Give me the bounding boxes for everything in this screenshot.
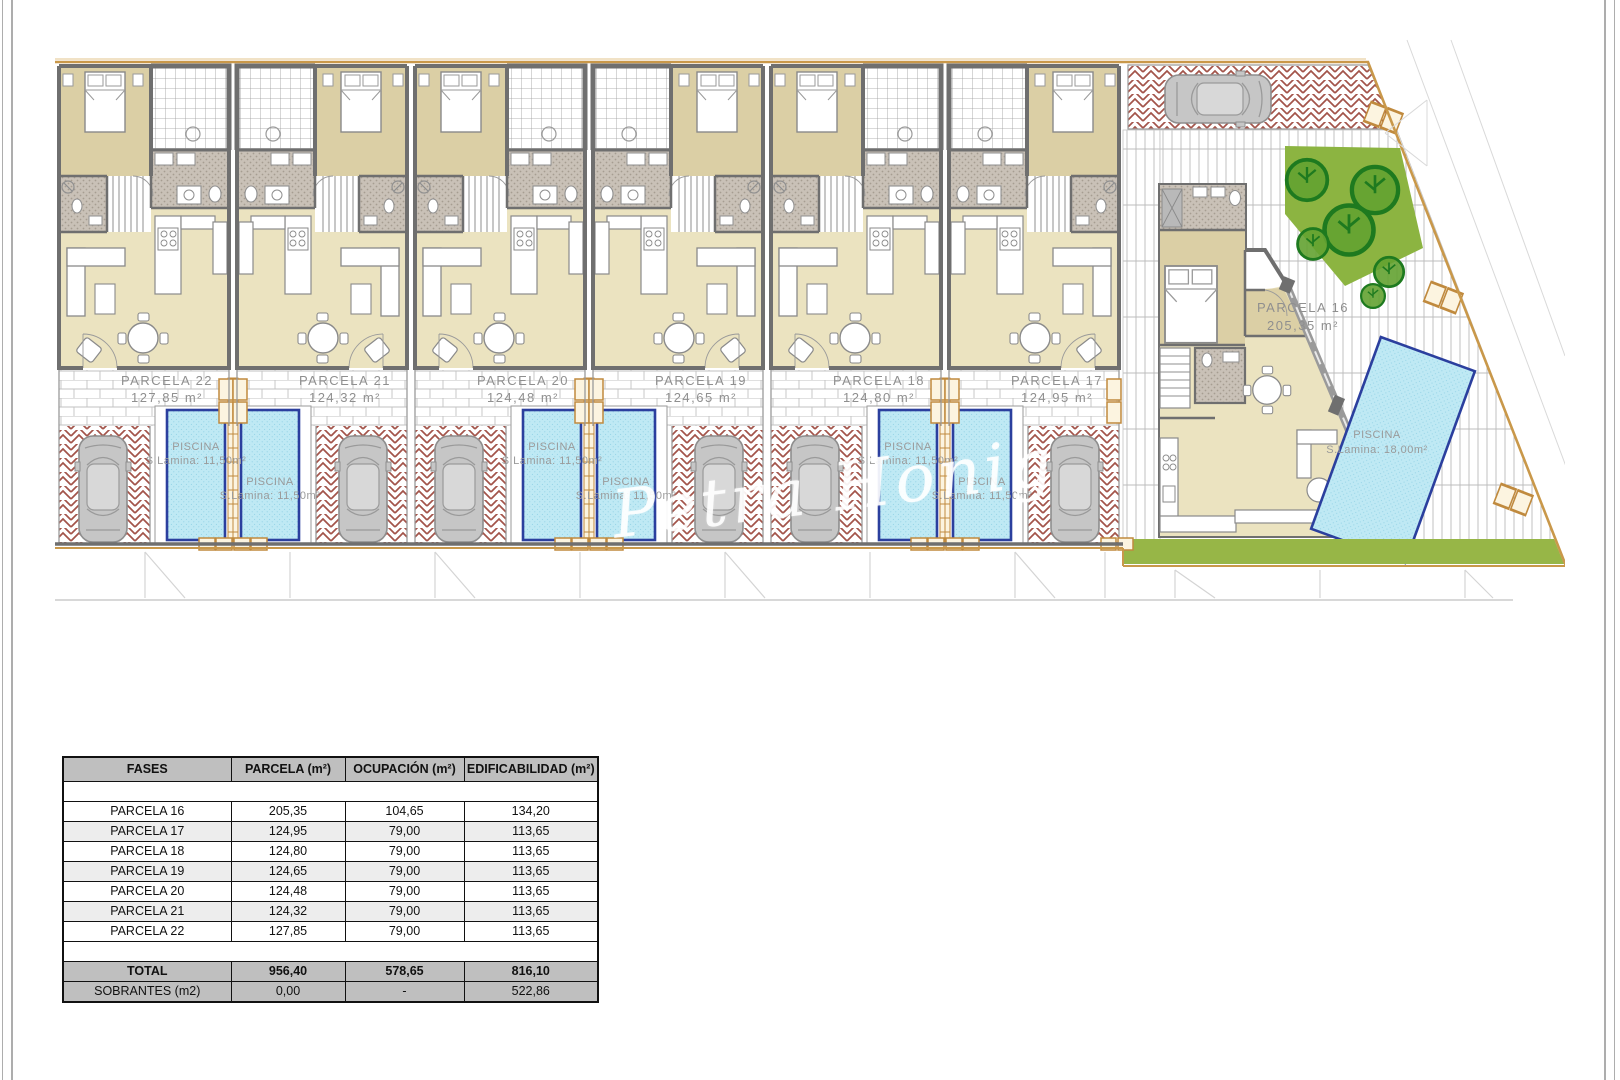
parcel-21-area: 124,32 m² xyxy=(309,390,381,405)
col-header-edificabilidad: EDIFICABILIDAD (m²) xyxy=(464,757,598,782)
pool-18-area: S.Lamina: 11,50m² xyxy=(858,455,959,467)
cell-sobrantes-ocupacion: - xyxy=(345,982,464,1003)
cell-fase: PARCELA 17 xyxy=(63,822,231,842)
cell-total-edificabilidad: 816,10 xyxy=(464,962,598,982)
table-row-parcela-19: PARCELA 19 124,65 79,00 113,65 xyxy=(63,862,598,882)
spacer-row xyxy=(63,942,598,962)
table-row-parcela-20: PARCELA 20 124,48 79,00 113,65 xyxy=(63,882,598,902)
table-header-row: FASES PARCELA (m²) OCUPACIÓN (m²) EDIFIC… xyxy=(63,757,598,782)
parcel-19-area: 124,65 m² xyxy=(665,390,737,405)
cell-fase: PARCELA 19 xyxy=(63,862,231,882)
areas-table: FASES PARCELA (m²) OCUPACIÓN (m²) EDIFIC… xyxy=(62,756,599,1003)
cell-total-label: TOTAL xyxy=(63,962,231,982)
cell-ocupacion: 79,00 xyxy=(345,822,464,842)
cell-edificabilidad: 113,65 xyxy=(464,922,598,942)
cell-parcela: 124,80 xyxy=(231,842,345,862)
green-strip xyxy=(1123,539,1564,564)
pool-17-label: PISCINA xyxy=(958,476,1006,488)
cell-sobrantes-edificabilidad: 522,86 xyxy=(464,982,598,1003)
cell-fase: PARCELA 18 xyxy=(63,842,231,862)
parcel-20-label: PARCELA 20 xyxy=(477,373,569,388)
cell-edificabilidad: 113,65 xyxy=(464,822,598,842)
cell-fase: PARCELA 20 xyxy=(63,882,231,902)
page-border-line-left-inner xyxy=(11,0,13,1080)
cell-ocupacion: 79,00 xyxy=(345,842,464,862)
table-row-parcela-22: PARCELA 22 127,85 79,00 113,65 xyxy=(63,922,598,942)
cell-edificabilidad: 113,65 xyxy=(464,902,598,922)
cell-edificabilidad: 113,65 xyxy=(464,862,598,882)
cell-ocupacion: 79,00 xyxy=(345,922,464,942)
table-row-parcela-18: PARCELA 18 124,80 79,00 113,65 xyxy=(63,842,598,862)
pool-21-label: PISCINA xyxy=(246,476,294,488)
parcel-17-area: 124,95 m² xyxy=(1021,390,1093,405)
table-row-parcela-16: PARCELA 16 205,35 104,65 134,20 xyxy=(63,802,598,822)
pool-21-area: S.Lamina: 11,50m² xyxy=(220,490,321,502)
pool-20-area: S.Lamina: 11,50m² xyxy=(502,455,603,467)
cell-sobrantes-parcela: 0,00 xyxy=(231,982,345,1003)
parcel-16-area: 205,35 m² xyxy=(1267,318,1339,333)
pool-18-label: PISCINA xyxy=(884,441,932,453)
table-row-parcela-21: PARCELA 21 124,32 79,00 113,65 xyxy=(63,902,598,922)
cell-parcela: 124,95 xyxy=(231,822,345,842)
parcel-22-area: 127,85 m² xyxy=(131,390,203,405)
pool-22-area: S.Lamina: 11,50m² xyxy=(146,455,247,467)
pool-17-area: S.Lamina: 11,50m² xyxy=(932,490,1033,502)
pool-22-label: PISCINA xyxy=(172,441,220,453)
cell-parcela: 205,35 xyxy=(231,802,345,822)
col-header-parcela: PARCELA (m²) xyxy=(231,757,345,782)
cell-ocupacion: 79,00 xyxy=(345,882,464,902)
cell-parcela: 124,32 xyxy=(231,902,345,922)
pool-19-label: PISCINA xyxy=(602,476,650,488)
col-header-fases: FASES xyxy=(63,757,231,782)
table-row-parcela-17: PARCELA 17 124,95 79,00 113,65 xyxy=(63,822,598,842)
parcel-20-area: 124,48 m² xyxy=(487,390,559,405)
cell-edificabilidad: 113,65 xyxy=(464,882,598,902)
pool-19-area: S.Lamina: 11,50m² xyxy=(576,490,677,502)
cell-total-parcela: 956,40 xyxy=(231,962,345,982)
villa-car xyxy=(1165,71,1271,127)
pool-20-label: PISCINA xyxy=(528,441,576,453)
parcel-21-label: PARCELA 21 xyxy=(299,373,391,388)
pool-16-label: PISCINA xyxy=(1353,429,1401,441)
cell-ocupacion: 79,00 xyxy=(345,902,464,922)
parcel-18-label: PARCELA 18 xyxy=(833,373,925,388)
cell-parcela: 124,65 xyxy=(231,862,345,882)
cell-sobrantes-label: SOBRANTES (m2) xyxy=(63,982,231,1003)
parcel-16-label: PARCELA 16 xyxy=(1257,300,1349,315)
cell-fase: PARCELA 16 xyxy=(63,802,231,822)
parcel-17-label: PARCELA 17 xyxy=(1011,373,1103,388)
page-border-line-right-inner xyxy=(1604,0,1606,1080)
cell-ocupacion: 104,65 xyxy=(345,802,464,822)
parcel-22-label: PARCELA 22 xyxy=(121,373,213,388)
cell-edificabilidad: 134,20 xyxy=(464,802,598,822)
cell-fase: PARCELA 22 xyxy=(63,922,231,942)
cell-fase: PARCELA 21 xyxy=(63,902,231,922)
cell-edificabilidad: 113,65 xyxy=(464,842,598,862)
cell-parcela: 127,85 xyxy=(231,922,345,942)
page: { "plan": { "watermark": "Petra Honig", … xyxy=(0,0,1620,1080)
cell-parcela: 124,48 xyxy=(231,882,345,902)
cell-ocupacion: 79,00 xyxy=(345,862,464,882)
table-row-sobrantes: SOBRANTES (m2) 0,00 - 522,86 xyxy=(63,982,598,1003)
floor-plan: PARCELA 22 127,85 m² PARCELA 21 124,32 m… xyxy=(55,38,1565,620)
parcel-18-area: 124,80 m² xyxy=(843,390,915,405)
table-row-total: TOTAL 956,40 578,65 816,10 xyxy=(63,962,598,982)
cell-total-ocupacion: 578,65 xyxy=(345,962,464,982)
page-border-line-left-outer xyxy=(2,0,3,1080)
spacer-row xyxy=(63,782,598,802)
col-header-ocupacion: OCUPACIÓN (m²) xyxy=(345,757,464,782)
page-border-line-right-outer xyxy=(1614,0,1615,1080)
parcel-19-label: PARCELA 19 xyxy=(655,373,747,388)
pool-16-area: S.Lamina: 18,00m² xyxy=(1326,444,1427,456)
